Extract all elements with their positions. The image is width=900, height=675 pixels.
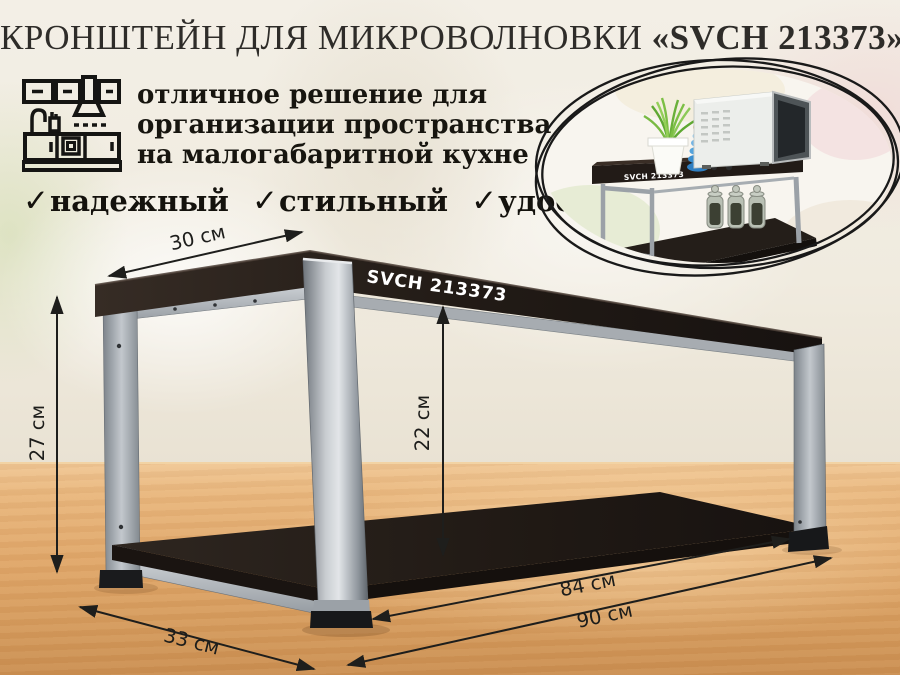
product-card: КРОНШТЕЙН ДЛЯ МИКРОВОЛНОВКИ «SVCH 213373… — [0, 0, 900, 675]
dim-label-height: 27 см — [26, 405, 49, 461]
dim-label-length: 90 см — [575, 599, 635, 633]
dim-label-top-depth: 30 см — [167, 220, 227, 255]
shelf-frame: SVCH 213373 — [95, 251, 829, 628]
dim-label-clearance: 22 см — [411, 395, 434, 451]
dim-label-bottom-depth: 33 см — [161, 624, 221, 660]
dim-label-inner-length: 84 см — [558, 568, 618, 601]
main-product-photo: SVCH 213373 30 см — [0, 0, 900, 675]
